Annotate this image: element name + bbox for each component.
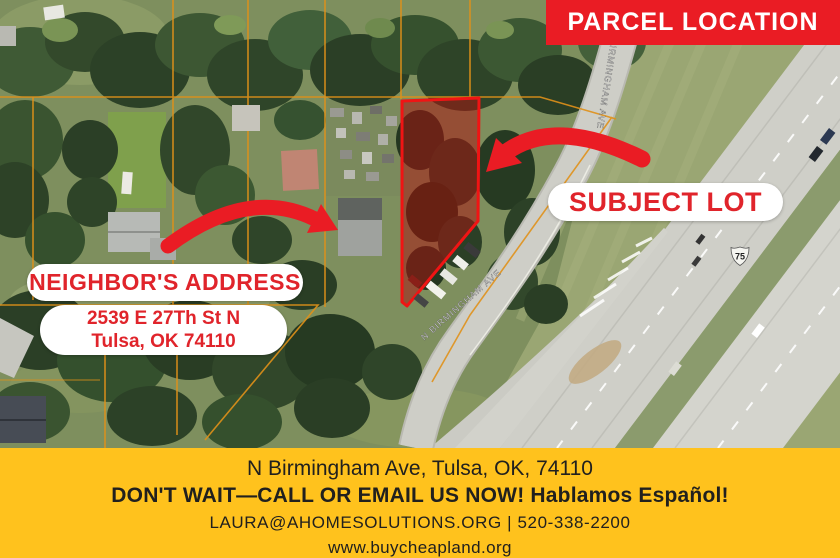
neighbor-address-label: NEIGHBOR'S ADDRESS (29, 269, 301, 296)
land-sale-flyer: 75 N BIRMINGHAM AVE N BIRMINGHAM AVE PAR… (0, 0, 840, 558)
us-75-shield-number: 75 (735, 252, 745, 262)
neighbor-street-address-pill: 2539 E 27Th St N Tulsa, OK 74110 (40, 305, 287, 355)
parcel-location-banner: PARCEL LOCATION (546, 0, 840, 45)
neighbor-address-pill: NEIGHBOR'S ADDRESS (27, 264, 303, 301)
contact-footer: N Birmingham Ave, Tulsa, OK, 74110 DON'T… (0, 448, 840, 558)
website-url: www.buycheapland.org (328, 536, 512, 558)
subject-lot-pill: SUBJECT LOT (548, 183, 783, 221)
satellite-map: 75 N BIRMINGHAM AVE N BIRMINGHAM AVE (0, 0, 840, 448)
property-address: N Birmingham Ave, Tulsa, OK, 74110 (247, 455, 593, 482)
neighbor-address-line1: 2539 E 27Th St N (87, 307, 240, 330)
contact-email-phone: LAURA@AHOMESOLUTIONS.ORG | 520-338-2200 (209, 510, 630, 536)
neighbor-street-address: 2539 E 27Th St N Tulsa, OK 74110 (87, 307, 240, 353)
neighbor-address-line2: Tulsa, OK 74110 (87, 330, 240, 353)
subject-lot-label: SUBJECT LOT (569, 187, 762, 218)
call-to-action: DON'T WAIT—CALL OR EMAIL US NOW! Hablamo… (111, 482, 728, 510)
parcel-location-banner-text: PARCEL LOCATION (567, 8, 818, 37)
